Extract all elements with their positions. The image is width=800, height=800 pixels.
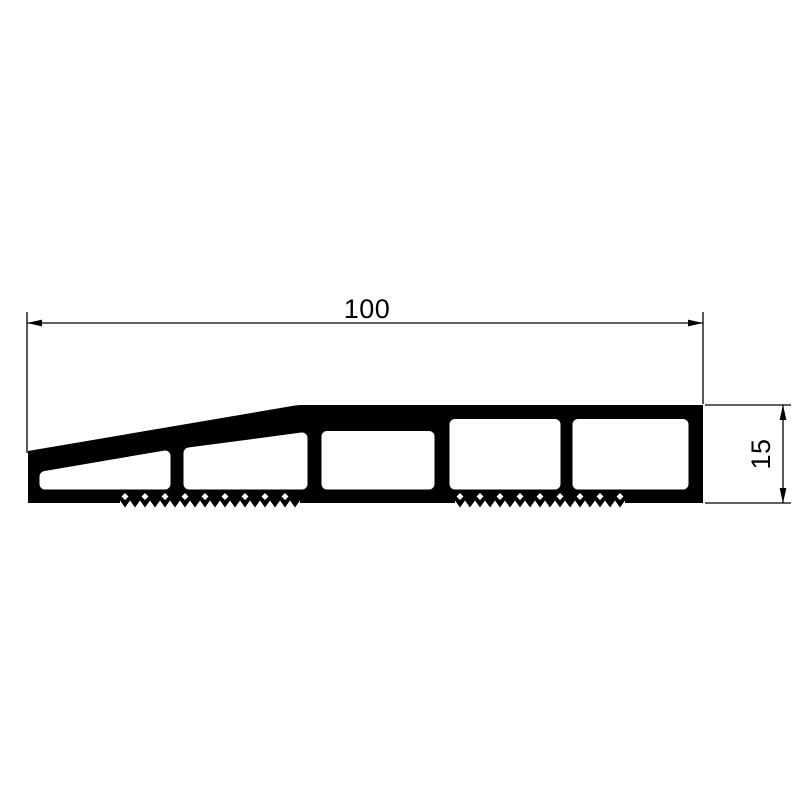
height-arrow-top-icon (780, 405, 787, 420)
height-arrow-bottom-icon (780, 488, 787, 503)
profile-technical-drawing: 100 15 (0, 0, 800, 800)
serration-teeth (455, 501, 625, 508)
width-arrow-right-icon (688, 320, 703, 327)
chamber-5 (578, 425, 683, 485)
height-dimension: 15 (705, 405, 791, 503)
width-dimension-value: 100 (344, 294, 391, 324)
width-arrow-left-icon (27, 320, 42, 327)
height-dimension-value: 15 (746, 438, 776, 469)
chamber-4 (455, 425, 555, 485)
profile-body (28, 405, 703, 508)
drawing-canvas: 100 15 (0, 0, 800, 800)
chamber-3 (327, 437, 429, 485)
